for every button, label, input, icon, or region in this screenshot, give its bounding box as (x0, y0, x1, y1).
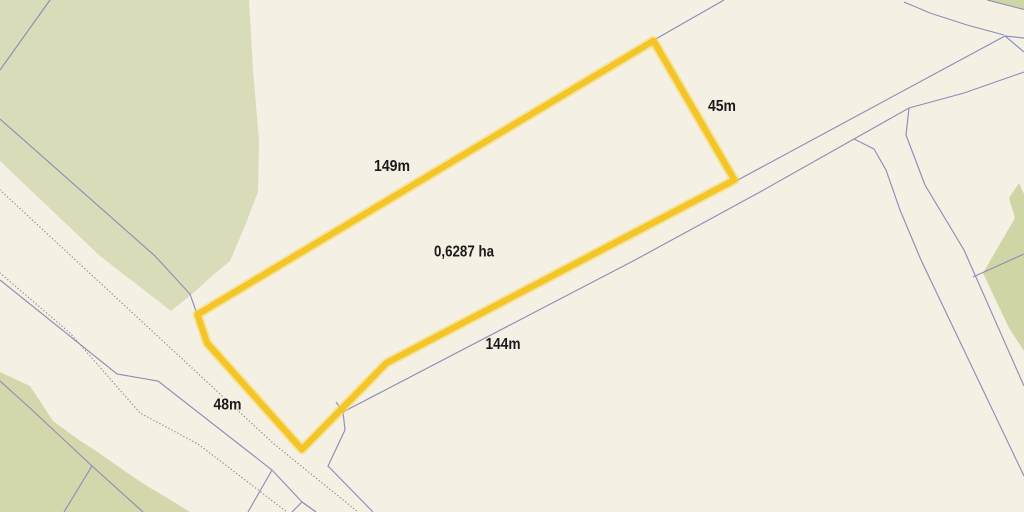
svg-text:48m: 48m (214, 397, 242, 414)
svg-text:149m: 149m (374, 158, 410, 175)
svg-text:45m: 45m (708, 98, 736, 115)
svg-text:0,6287 ha: 0,6287 ha (434, 244, 494, 261)
svg-text:144m: 144m (486, 336, 521, 353)
